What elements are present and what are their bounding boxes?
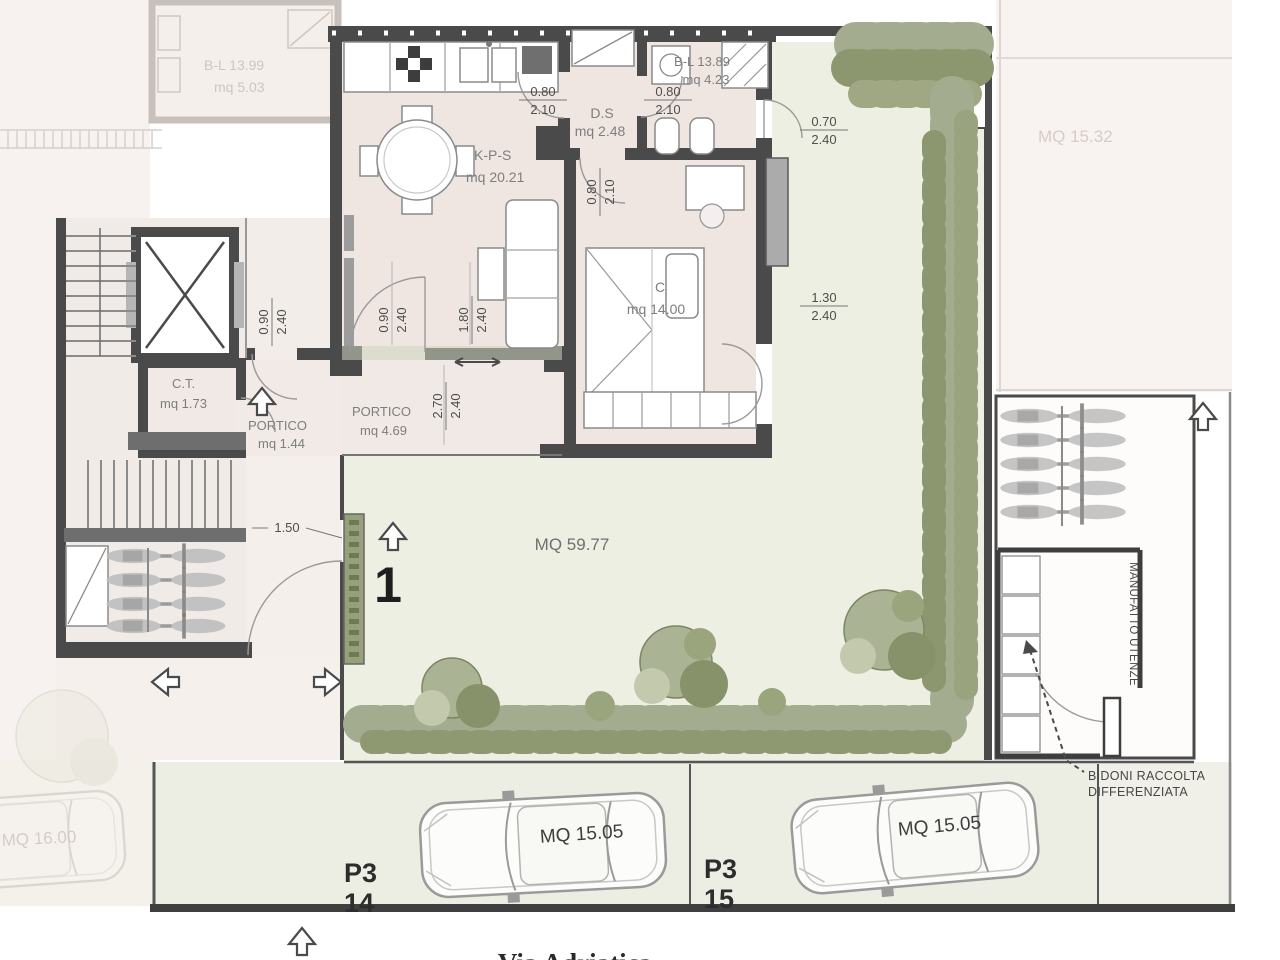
- utility-shed-label: MANUFATTO UTENZE: [1127, 562, 1139, 686]
- spot1-code-line2: 14: [344, 888, 374, 918]
- bush: [758, 688, 786, 716]
- parking-area: [154, 762, 1232, 904]
- floor-plan-canvas: B-L 13.99 mq 5.03 MQ 15.32: [0, 0, 1280, 960]
- ds-name: D.S: [590, 105, 613, 121]
- portico2-area: mq 4.69: [360, 423, 407, 438]
- svg-text:0.80: 0.80: [655, 84, 680, 99]
- bins-label-line2: DIFFERENZIATA: [1088, 785, 1188, 799]
- svg-text:2.40: 2.40: [474, 307, 489, 332]
- toilet-icon: [655, 118, 679, 154]
- unit-number: 1: [374, 557, 402, 613]
- bins-label-line1: BIDONI RACCOLTA: [1088, 769, 1206, 783]
- svg-text:0.90: 0.90: [256, 309, 271, 334]
- spot1-code-line1: P3: [344, 858, 377, 888]
- storage-bins: [1002, 556, 1040, 752]
- tree: [840, 590, 936, 680]
- svg-text:0.80: 0.80: [530, 84, 555, 99]
- street-entry-arrow-icon: [289, 928, 315, 955]
- spot2-code-line1: P3: [704, 854, 737, 884]
- svg-text:0.70: 0.70: [811, 114, 836, 129]
- svg-text:1.80: 1.80: [456, 307, 471, 332]
- oven-icon: [522, 46, 552, 74]
- exterior-shutter-panel: [766, 158, 788, 266]
- street-name: Via Adriatica: [498, 948, 653, 960]
- bedroom-name: C: [655, 279, 665, 295]
- svg-text:0.90: 0.90: [376, 307, 391, 332]
- svg-text:2.70: 2.70: [430, 393, 445, 418]
- kps-area: mq 20.21: [466, 169, 525, 185]
- tv-unit: [344, 215, 354, 346]
- kps-name: K-P-S: [474, 147, 511, 163]
- neighbor-room-label: B-L 13.99: [204, 57, 264, 73]
- garden-area-label: MQ 59.77: [535, 535, 610, 554]
- svg-text:2.10: 2.10: [602, 179, 617, 204]
- portico2-name: PORTICO: [352, 404, 411, 419]
- bush: [585, 691, 615, 721]
- svg-text:0.80: 0.80: [584, 179, 599, 204]
- svg-text:2.40: 2.40: [811, 308, 836, 323]
- tree: [634, 626, 728, 708]
- shed-door-leaf: [1104, 698, 1120, 756]
- kitchen-counter: [344, 41, 558, 92]
- faded-parking-area: MQ 16.00: [1, 827, 77, 850]
- floor-plan-page: B-L 13.99 mq 5.03 MQ 15.32: [0, 0, 1280, 960]
- elevator: [126, 232, 244, 358]
- bl-name: B-L 13.89: [674, 54, 730, 69]
- bidet-icon: [690, 118, 714, 154]
- bike-rack-utility: [1000, 403, 1125, 526]
- neighbor-garden-area: MQ 15.32: [1038, 127, 1113, 146]
- portico1-name: PORTICO: [248, 418, 307, 433]
- neighbor-room-area: mq 5.03: [214, 79, 265, 95]
- svg-text:2.40: 2.40: [274, 309, 289, 334]
- spot2-code-line2: 15: [704, 884, 734, 914]
- svg-text:2.40: 2.40: [394, 307, 409, 332]
- svg-text:2.10: 2.10: [530, 102, 555, 117]
- svg-text:1.50: 1.50: [274, 520, 299, 535]
- entrance-hedge: [344, 514, 364, 664]
- bl-area: mq 4.23: [683, 72, 730, 87]
- portico1-area: mq 1.44: [258, 436, 305, 451]
- bed: [586, 248, 704, 398]
- svg-text:2.40: 2.40: [448, 393, 463, 418]
- bedroom-area: mq 14.00: [627, 301, 686, 317]
- svg-text:2.40: 2.40: [811, 132, 836, 147]
- ds-closet: [572, 30, 634, 66]
- svg-text:2.10: 2.10: [655, 102, 680, 117]
- ct-area: mq 1.73: [160, 396, 207, 411]
- ct-name: C.T.: [172, 376, 195, 391]
- ds-area: mq 2.48: [575, 123, 626, 139]
- svg-text:1.30: 1.30: [811, 290, 836, 305]
